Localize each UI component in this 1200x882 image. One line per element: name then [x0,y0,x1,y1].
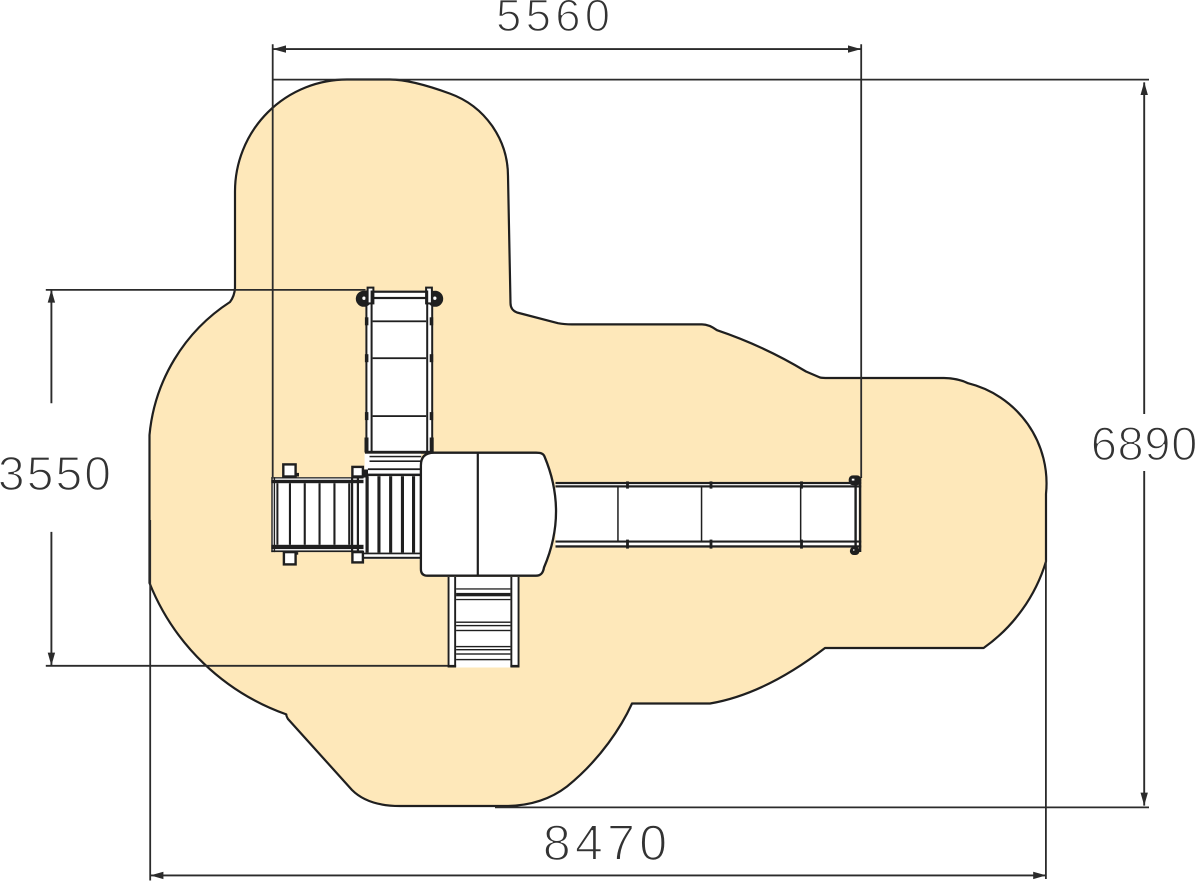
svg-text:6890: 6890 [1091,417,1198,470]
svg-text:3550: 3550 [0,448,113,501]
svg-text:8470: 8470 [543,815,671,871]
svg-text:5560: 5560 [496,0,614,41]
